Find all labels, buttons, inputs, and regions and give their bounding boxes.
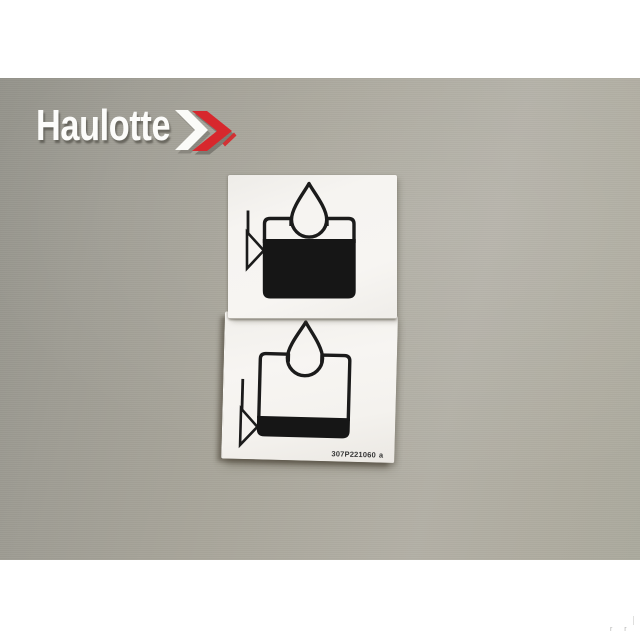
label-oil-level-full	[228, 175, 397, 319]
double-chevron-right-icon	[175, 110, 239, 154]
photo-frame: Haulotte 307P221060a	[0, 0, 640, 640]
brand-name: Haulotte	[36, 104, 170, 148]
watermark-text: r r	[610, 626, 632, 633]
part-number-value: 307P221060	[331, 449, 376, 459]
watermark-tick	[633, 616, 634, 625]
part-revision: a	[379, 451, 384, 460]
label-oil-level-low: 307P221060a	[221, 311, 398, 462]
part-number: 307P221060a	[331, 449, 383, 459]
hydraulic-oil-tank-full-icon	[228, 175, 397, 318]
hydraulic-oil-tank-low-icon	[222, 311, 398, 462]
haulotte-logo: Haulotte	[36, 104, 246, 156]
